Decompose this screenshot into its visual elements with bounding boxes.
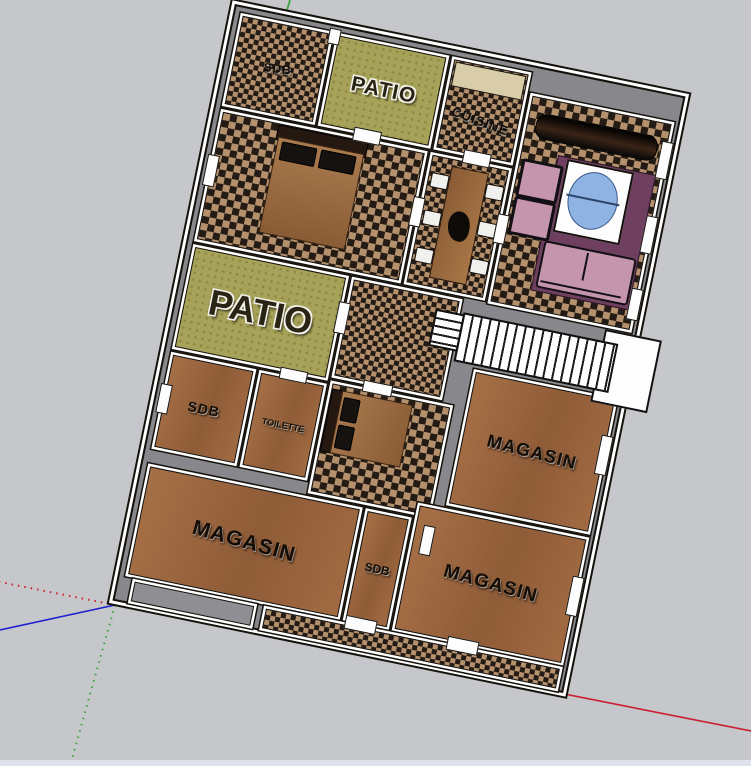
pillow bbox=[339, 397, 360, 424]
room-magasin-right: MAGASIN bbox=[449, 372, 615, 532]
single-bed bbox=[330, 390, 413, 467]
chair bbox=[414, 247, 435, 265]
room-label: PATIO bbox=[176, 248, 345, 377]
chair bbox=[421, 209, 442, 227]
room-label: SDB bbox=[228, 19, 327, 118]
room-label: SDB bbox=[155, 356, 252, 462]
room-patio-main: PATIO bbox=[175, 247, 346, 378]
sofa-seam bbox=[581, 253, 589, 281]
room-sdb-top: SDB bbox=[225, 16, 331, 122]
armchair bbox=[507, 195, 556, 242]
pillow bbox=[334, 424, 355, 451]
pillow bbox=[318, 149, 357, 175]
coffee-table-glass bbox=[562, 167, 623, 234]
tv-console bbox=[533, 112, 660, 162]
room-label: TOILETTE bbox=[244, 374, 323, 477]
red-axis-dotted bbox=[0, 582, 115, 605]
green-axis-dotted bbox=[70, 605, 115, 766]
room-toilette: TOILETTE bbox=[242, 373, 324, 478]
blue-axis-line bbox=[0, 605, 115, 630]
plant-centerpiece bbox=[445, 210, 473, 244]
sofa-base-line bbox=[540, 280, 621, 298]
double-bed bbox=[258, 136, 364, 250]
room-sdb-left: SDB bbox=[154, 355, 253, 464]
chair bbox=[484, 183, 505, 201]
room-dining bbox=[406, 155, 509, 298]
room-bedroom-2 bbox=[311, 383, 451, 515]
window-edge bbox=[0, 760, 751, 766]
chair bbox=[469, 258, 490, 276]
3d-viewport[interactable]: SDB PATIO CUISINE bbox=[0, 0, 751, 766]
room-patio-top: PATIO bbox=[321, 35, 447, 145]
room-cuisine: CUISINE bbox=[436, 59, 529, 162]
pillow bbox=[278, 141, 317, 167]
coffee-table bbox=[553, 159, 634, 245]
room-living bbox=[490, 96, 671, 330]
room-label: PATIO bbox=[322, 37, 445, 145]
chair bbox=[429, 172, 450, 190]
